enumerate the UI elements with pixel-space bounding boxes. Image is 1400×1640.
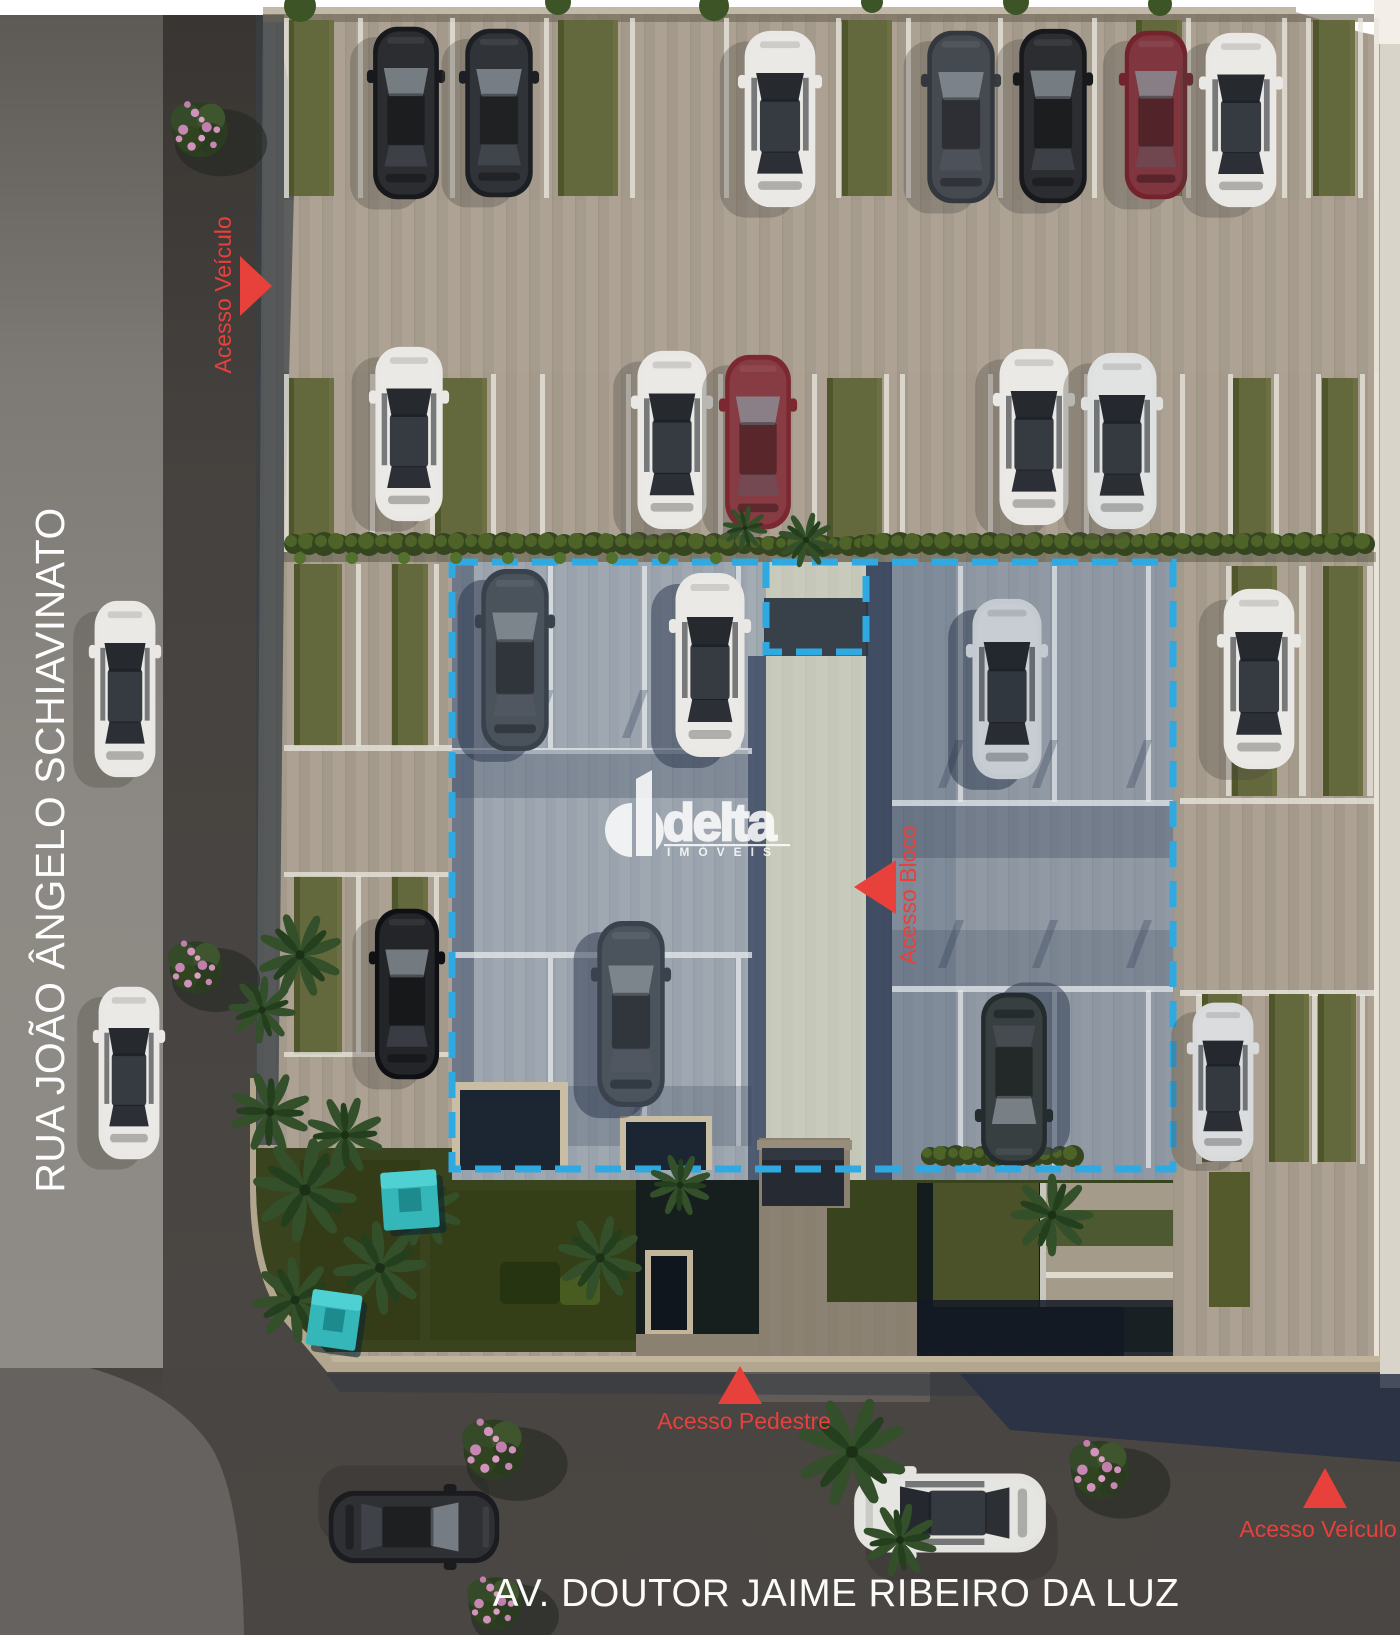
svg-text:Acesso Veículo: Acesso Veículo [210,216,236,373]
svg-text:Acesso Veículo: Acesso Veículo [1239,1516,1396,1542]
svg-text:IMÓVEIS: IMÓVEIS [667,844,780,859]
svg-text:Acesso Bloco: Acesso Bloco [895,825,921,964]
svg-text:delta: delta [663,794,777,852]
svg-text:Acesso Pedestre: Acesso Pedestre [657,1408,831,1434]
svg-text:AV. DOUTOR JAIME RIBEIRO DA LU: AV. DOUTOR JAIME RIBEIRO DA LUZ [493,1572,1180,1615]
svg-text:RUA JOÃO ÂNGELO SCHIAVINATO: RUA JOÃO ÂNGELO SCHIAVINATO [27,507,73,1193]
